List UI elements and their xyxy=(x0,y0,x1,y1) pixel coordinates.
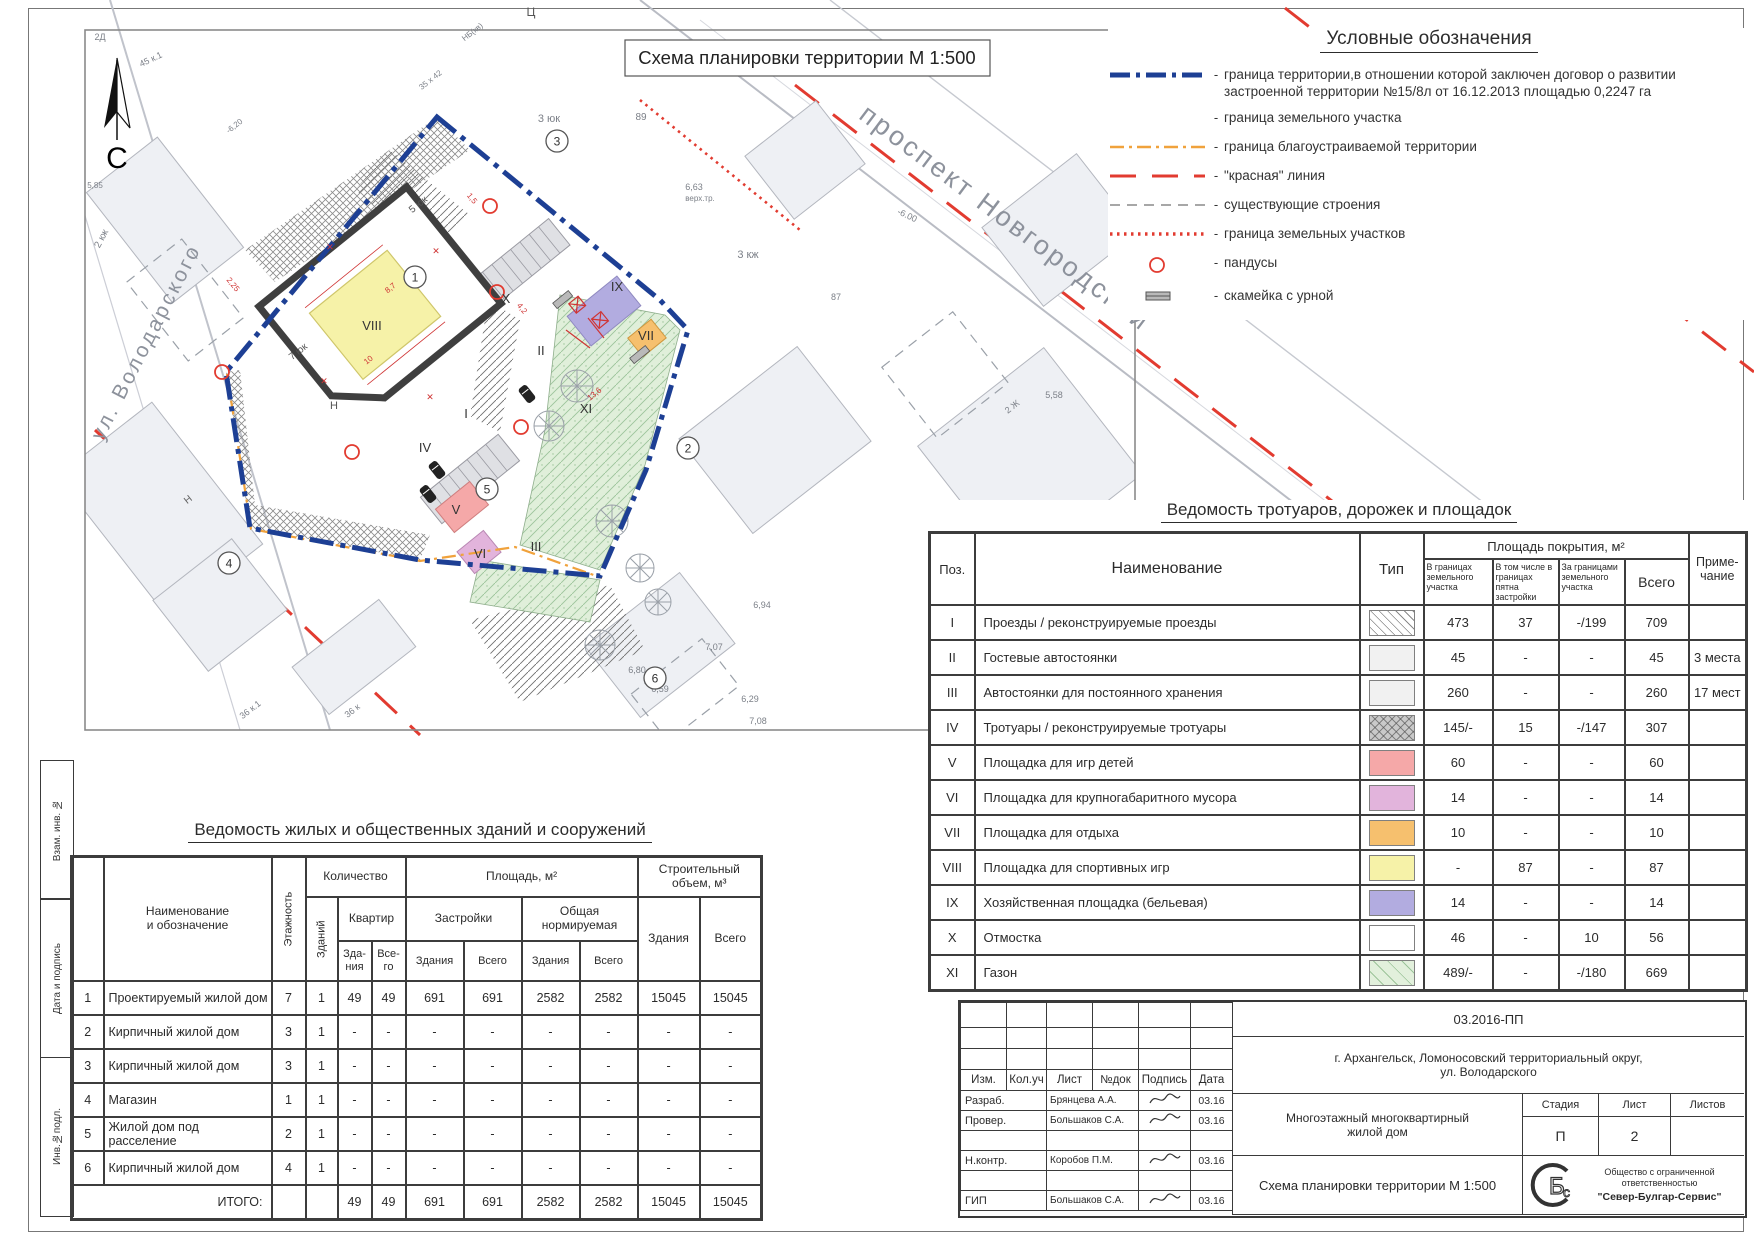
persons-table: Изм.Кол.учЛист№докПодписьДатаРазраб.Брян… xyxy=(960,1002,1233,1211)
grp-vol: Строительный объем, м³ xyxy=(638,857,762,898)
revision-cell xyxy=(1007,1003,1047,1028)
walkways-row: VIIПлощадка для отдыха10--10 xyxy=(930,815,1747,850)
walkways-cell: 87 xyxy=(1493,850,1559,885)
buildings-total-cell xyxy=(306,1185,338,1220)
map-annotation: 5,58 xyxy=(1045,390,1063,400)
person-cell: Брянцева А.А. xyxy=(1047,1091,1139,1111)
buildings-cell: 691 xyxy=(406,981,464,1015)
persons-header-cell: Лист xyxy=(1047,1070,1093,1091)
buildings-total-cell: 691 xyxy=(406,1185,464,1220)
stamp-right: 03.2016-ПП г. Архангельск, Ломоносовский… xyxy=(1232,1002,1744,1215)
revision-cell xyxy=(1093,1049,1139,1070)
legend-item-label: существующие строения xyxy=(1224,197,1380,214)
revision-cell xyxy=(961,1003,1007,1028)
person-cell xyxy=(1191,1131,1233,1151)
person-cell: Н.контр. xyxy=(961,1151,1047,1171)
walkways-cell: IV xyxy=(930,710,975,745)
sheet-label: Лист xyxy=(1598,1094,1670,1117)
buildings-cell: - xyxy=(464,1015,522,1049)
person-row: Провер.Большаков С.А.03.16 xyxy=(961,1111,1233,1131)
col-nz: Здания xyxy=(522,941,580,981)
buildings-cell: - xyxy=(464,1117,522,1151)
col-total: Всего xyxy=(1625,559,1689,605)
buildings-cell: - xyxy=(522,1151,580,1185)
col-num xyxy=(72,857,104,982)
legend-item-label: граница земельных участков xyxy=(1224,226,1405,243)
buildings-cell: Кирпичный жилой дом xyxy=(104,1049,272,1083)
walkways-cell xyxy=(1689,850,1747,885)
walkways-cell: - xyxy=(1493,640,1559,675)
buildings-total-cell: 49 xyxy=(338,1185,372,1220)
gray-dash-symbol xyxy=(1108,197,1208,217)
persons-header-cell: №док xyxy=(1093,1070,1139,1091)
walkways-cell: XI xyxy=(930,955,975,991)
walkways-cell: -/199 xyxy=(1559,605,1625,640)
doc-number: 03.2016-ПП xyxy=(1232,1002,1744,1037)
strip-cell: Инв.№подл. xyxy=(40,1057,74,1217)
person-cell: ГИП xyxy=(961,1191,1047,1211)
map-annotation: НБ(кв) xyxy=(460,21,485,43)
type-swatch xyxy=(1369,890,1415,916)
buildings-cell: - xyxy=(406,1083,464,1117)
walkways-row: IVТротуары / реконструируемые тротуары14… xyxy=(930,710,1747,745)
map-area-label: I xyxy=(464,406,468,421)
project-location: г. Архангельск, Ломоносовский территориа… xyxy=(1232,1037,1744,1094)
buildings-cell: - xyxy=(638,1015,700,1049)
person-cell xyxy=(961,1171,1047,1191)
buildings-cell: 1 xyxy=(306,1083,338,1117)
map-annotation: 3 кж xyxy=(737,249,759,261)
buildings-cell: - xyxy=(522,1015,580,1049)
walkways-cell: -/147 xyxy=(1559,710,1625,745)
map-area-label: VI xyxy=(474,546,486,561)
type-swatch-cell xyxy=(1360,850,1424,885)
buildings-cell: - xyxy=(372,1015,406,1049)
buildings-cell: 4 xyxy=(72,1083,104,1117)
buildings-cell: - xyxy=(338,1015,372,1049)
person-cell: 03.16 xyxy=(1191,1191,1233,1211)
buildings-cell: 15045 xyxy=(638,981,700,1015)
type-swatch xyxy=(1369,785,1415,811)
buildings-cell: 15045 xyxy=(700,981,762,1015)
person-cell: Провер. xyxy=(961,1111,1047,1131)
buildings-table: Наименование и обозначение Этажность Кол… xyxy=(70,855,763,1221)
walkways-cell: Отмостка xyxy=(975,920,1360,955)
person-cell: 03.16 xyxy=(1191,1111,1233,1131)
legend: Условные обозначения -граница территории… xyxy=(1108,28,1750,320)
walkways-cell: Площадка для крупногабаритного мусора xyxy=(975,780,1360,815)
map-area-label: II xyxy=(537,343,544,358)
person-row xyxy=(961,1171,1233,1191)
company-name: "Север-Булгар-Сервис" xyxy=(1581,1191,1739,1203)
buildings-cell: - xyxy=(580,1049,638,1083)
buildings-cell: - xyxy=(638,1151,700,1185)
buildings-title: Ведомость жилых и общественных зданий и … xyxy=(70,820,770,843)
buildings-cell: 2 xyxy=(72,1015,104,1049)
buildings-cell: - xyxy=(406,1151,464,1185)
grp-flats: Квартир xyxy=(338,897,406,941)
walkways-cell: 10 xyxy=(1625,815,1689,850)
buildings-cell: 6 xyxy=(72,1151,104,1185)
revision-cell xyxy=(1093,1003,1139,1028)
buildings-cell: - xyxy=(700,1083,762,1117)
walkways-cell: Хозяйственная площадка (бельевая) xyxy=(975,885,1360,920)
walkways-cell xyxy=(1689,955,1747,991)
buildings-cell: - xyxy=(638,1083,700,1117)
buildings-cell: Жилой дом под расселение xyxy=(104,1117,272,1151)
revision-row xyxy=(961,1049,1233,1070)
map-annotation: верх.тр. xyxy=(685,194,715,203)
walkways-cell: V xyxy=(930,745,975,780)
type-swatch xyxy=(1369,855,1415,881)
walkways-cell: - xyxy=(1559,885,1625,920)
revision-row xyxy=(961,1003,1233,1028)
buildings-cell: Магазин xyxy=(104,1083,272,1117)
blue-dashdot-symbol xyxy=(1108,67,1208,87)
buildings-panel: Ведомость жилых и общественных зданий и … xyxy=(70,820,770,1232)
legend-dash: - xyxy=(1208,67,1224,82)
walkways-cell: - xyxy=(1559,745,1625,780)
map-annotation: Н xyxy=(330,400,338,412)
map-area-label: X xyxy=(502,291,511,306)
revision-cell xyxy=(1139,1049,1191,1070)
walkways-cell: - xyxy=(1493,815,1559,850)
col-pos: Поз. xyxy=(930,533,975,606)
legend-item-label: граница земельного участка xyxy=(1224,110,1402,127)
walkways-cell xyxy=(1689,815,1747,850)
buildings-cell: - xyxy=(406,1117,464,1151)
type-swatch xyxy=(1369,960,1415,986)
type-swatch xyxy=(1369,610,1415,636)
walkways-cell: 17 мест xyxy=(1689,675,1747,710)
map-area-label: IV xyxy=(419,440,432,455)
walkways-cell: 14 xyxy=(1424,780,1493,815)
person-cell xyxy=(961,1131,1047,1151)
legend-item: -граница территории,в отношении которой … xyxy=(1108,67,1750,101)
legend-item: -существующие строения xyxy=(1108,197,1750,217)
col-vol-t: Всего xyxy=(700,897,762,981)
map-annotation: 6,29 xyxy=(741,694,759,704)
revision-cell xyxy=(1093,1028,1139,1049)
persons-header-cell: Изм. xyxy=(961,1070,1007,1091)
buildings-cell: 2582 xyxy=(580,981,638,1015)
person-cell xyxy=(1191,1171,1233,1191)
revision-cell xyxy=(961,1049,1007,1070)
north-label: С xyxy=(106,142,128,175)
buildings-cell: 3 xyxy=(272,1049,306,1083)
strip-cell: Дата и подпись xyxy=(40,898,74,1058)
revision-cell xyxy=(1047,1028,1093,1049)
bench-symbol xyxy=(1108,288,1208,308)
stage-label: Стадия xyxy=(1522,1094,1598,1117)
walkways-cell: Площадка для игр детей xyxy=(975,745,1360,780)
circled-number-label: 2 xyxy=(685,442,692,456)
type-swatch-cell xyxy=(1360,710,1424,745)
buildings-cell: - xyxy=(372,1049,406,1083)
legend-dash: - xyxy=(1208,197,1224,212)
walkways-cell: 45 xyxy=(1625,640,1689,675)
walkways-cell: 709 xyxy=(1625,605,1689,640)
walkways-cell xyxy=(1689,605,1747,640)
map-area-label: VII xyxy=(638,328,654,343)
col-name: Наименование и обозначение xyxy=(104,857,272,982)
col-name: Наименование xyxy=(975,533,1360,606)
buildings-cell: - xyxy=(580,1117,638,1151)
legend-dash: - xyxy=(1208,226,1224,241)
walkways-cell: Тротуары / реконструируемые тротуары xyxy=(975,710,1360,745)
type-swatch xyxy=(1369,680,1415,706)
map-area-label: III xyxy=(531,539,542,554)
red-circle-symbol xyxy=(1108,255,1208,279)
walkways-cell xyxy=(1689,745,1747,780)
buildings-cell: - xyxy=(372,1151,406,1185)
col-a2: В том числе в границах пятна застройки xyxy=(1493,559,1559,605)
legend-item: -граница земельных участков xyxy=(1108,226,1750,246)
walkways-cell xyxy=(1689,885,1747,920)
revision-cell xyxy=(1007,1049,1047,1070)
col-bld: Зданий xyxy=(306,897,338,981)
buildings-cell: 2 xyxy=(272,1117,306,1151)
walkways-title: Ведомость тротуаров, дорожек и площадок xyxy=(928,500,1750,523)
strip-cell: Взам. инв. № xyxy=(40,760,74,900)
person-row xyxy=(961,1131,1233,1151)
person-row: ГИПБольшаков С.А.03.16 xyxy=(961,1191,1233,1211)
map-annotation: 1,5 xyxy=(465,191,479,206)
map-annotation: ✕ xyxy=(432,246,440,256)
walkways-cell: - xyxy=(1493,920,1559,955)
walkways-cell: Проезды / реконструируемые проезды xyxy=(975,605,1360,640)
buildings-cell: - xyxy=(700,1049,762,1083)
map-annotation: 45 к.1 xyxy=(138,50,164,69)
signature-icon xyxy=(1139,1091,1191,1111)
col-note: Приме- чание xyxy=(1689,533,1747,606)
walkways-cell: 260 xyxy=(1424,675,1493,710)
walkways-cell: - xyxy=(1559,850,1625,885)
svg-text:с: с xyxy=(1563,1184,1570,1200)
map-annotation: 2Д xyxy=(94,32,105,42)
buildings-cell: - xyxy=(372,1083,406,1117)
walkways-row: VIПлощадка для крупногабаритного мусора1… xyxy=(930,780,1747,815)
map-annotation: 7,07 xyxy=(705,642,723,652)
buildings-cell: 5 xyxy=(72,1117,104,1151)
buildings-cell: - xyxy=(338,1083,372,1117)
col-a3: За границами земельного участка xyxy=(1559,559,1625,605)
legend-item: -граница благоустраиваемой территории xyxy=(1108,139,1750,159)
map-annotation: 5,85 xyxy=(87,181,103,190)
walkways-row: IIГостевые автостоянки45--453 места xyxy=(930,640,1747,675)
walkways-row: IXХозяйственная площадка (бельевая)14--1… xyxy=(930,885,1747,920)
map-annotation: 36 к xyxy=(343,702,362,720)
legend-item-label: скамейка с урной xyxy=(1224,288,1333,305)
walkways-cell: 14 xyxy=(1625,780,1689,815)
buildings-cell: Кирпичный жилой дом xyxy=(104,1015,272,1049)
buildings-cell: 7 xyxy=(272,981,306,1015)
walkways-cell: - xyxy=(1559,675,1625,710)
buildings-cell: - xyxy=(338,1151,372,1185)
walkways-cell: 60 xyxy=(1625,745,1689,780)
walkways-cell: 145/- xyxy=(1424,710,1493,745)
margin-strip: Взам. инв. № Дата и подпись Инв.№подл. xyxy=(40,760,74,1218)
title-block: Изм.Кол.учЛист№докПодписьДатаРазраб.Брян… xyxy=(958,1000,1747,1218)
revision-row xyxy=(961,1028,1233,1049)
walkways-cell: - xyxy=(1424,850,1493,885)
persons-header-cell: Подпись xyxy=(1139,1070,1191,1091)
map-annotation: 6,63 xyxy=(685,182,703,192)
buildings-cell: 1 xyxy=(272,1083,306,1117)
company-logo: Б с xyxy=(1529,1161,1581,1209)
person-cell: 03.16 xyxy=(1191,1151,1233,1171)
walkways-cell: 46 xyxy=(1424,920,1493,955)
walkways-row: VПлощадка для игр детей60--60 xyxy=(930,745,1747,780)
legend-item-label: пандусы xyxy=(1224,255,1277,272)
persons-header-cell: Кол.уч xyxy=(1007,1070,1047,1091)
map-title: Схема планировки территории М 1:500 xyxy=(638,47,975,68)
buildings-row: 1Проектируемый жилой дом7149496916912582… xyxy=(72,981,762,1015)
buildings-cell: 4 xyxy=(272,1151,306,1185)
buildings-cell: 49 xyxy=(338,981,372,1015)
walkways-cell: - xyxy=(1493,885,1559,920)
type-swatch-cell xyxy=(1360,955,1424,991)
company-type: Общество с ограниченной ответственностью xyxy=(1581,1167,1739,1190)
red-dash-symbol xyxy=(1108,168,1208,188)
buildings-cell: - xyxy=(372,1117,406,1151)
legend-item-label: граница благоустраиваемой территории xyxy=(1224,139,1477,156)
buildings-cell: 3 xyxy=(272,1015,306,1049)
col-area-group: Площадь покрытия, м² xyxy=(1424,533,1689,560)
walkways-cell: Площадка для отдыха xyxy=(975,815,1360,850)
walkways-cell: - xyxy=(1493,745,1559,780)
buildings-total-cell: 2582 xyxy=(580,1185,638,1220)
walkways-row: XОтмостка46-1056 xyxy=(930,920,1747,955)
buildings-cell: - xyxy=(522,1117,580,1151)
type-swatch-cell xyxy=(1360,675,1424,710)
walkways-cell: -/180 xyxy=(1559,955,1625,991)
person-cell: Большаков С.А. xyxy=(1047,1111,1139,1131)
walkways-row: XIГазон489/---/180669 xyxy=(930,955,1747,991)
map-annotation: -6,20 xyxy=(225,117,245,136)
walkways-cell: I xyxy=(930,605,975,640)
buildings-cell: - xyxy=(464,1049,522,1083)
map-area-label: IX xyxy=(611,279,624,294)
walkways-panel: Ведомость тротуаров, дорожек и площадок … xyxy=(928,500,1750,992)
walkways-cell: - xyxy=(1559,815,1625,850)
stamp-sheet-title: Схема планировки территории М 1:500 xyxy=(1232,1156,1522,1215)
walkways-cell: 56 xyxy=(1625,920,1689,955)
col-fv: Всего xyxy=(464,941,522,981)
col-fz: Здания xyxy=(406,941,464,981)
revision-cell xyxy=(1191,1028,1233,1049)
walkways-cell: VI xyxy=(930,780,975,815)
walkways-cell: Автостоянки для постоянного хранения xyxy=(975,675,1360,710)
walkways-cell: 489/- xyxy=(1424,955,1493,991)
buildings-cell: - xyxy=(638,1117,700,1151)
walkways-cell: 307 xyxy=(1625,710,1689,745)
grp-footprint: Застройки xyxy=(406,897,522,941)
walkways-cell: 473 xyxy=(1424,605,1493,640)
buildings-cell: - xyxy=(338,1117,372,1151)
buildings-cell: - xyxy=(580,1015,638,1049)
type-swatch xyxy=(1369,925,1415,951)
walkways-cell: 10 xyxy=(1424,815,1493,850)
person-cell: Коробов П.М. xyxy=(1047,1151,1139,1171)
walkways-cell: 15 xyxy=(1493,710,1559,745)
map-annotation: 36 к.1 xyxy=(238,698,263,721)
circled-number-label: 6 xyxy=(652,672,659,686)
map-annotation: ✕ xyxy=(426,392,434,402)
walkways-cell: VIII xyxy=(930,850,975,885)
walkways-cell: II xyxy=(930,640,975,675)
walkways-cell: - xyxy=(1493,675,1559,710)
walkways-cell: 45 xyxy=(1424,640,1493,675)
buildings-cell: 1 xyxy=(306,1117,338,1151)
walkways-row: IПроезды / реконструируемые проезды47337… xyxy=(930,605,1747,640)
buildings-cell: - xyxy=(522,1083,580,1117)
sheets-value xyxy=(1670,1117,1744,1156)
map-annotation: ✕ xyxy=(326,242,334,252)
person-cell: 03.16 xyxy=(1191,1091,1233,1111)
person-cell: Разраб. xyxy=(961,1091,1047,1111)
circled-number-label: 5 xyxy=(484,483,491,497)
walkways-cell xyxy=(1689,920,1747,955)
legend-item-label: граница территории,в отношении которой з… xyxy=(1224,67,1729,101)
persons-header-row: Изм.Кол.учЛист№докПодписьДата xyxy=(961,1070,1233,1091)
buildings-cell: - xyxy=(700,1117,762,1151)
project-object: Многоэтажный многоквартирный жилой дом xyxy=(1232,1094,1522,1156)
map-annotation: 2,25 xyxy=(225,276,242,294)
legend-item: -граница земельного участка xyxy=(1108,110,1750,130)
map-annotation: -6.00 xyxy=(896,206,919,224)
walkways-cell xyxy=(1689,710,1747,745)
signature-icon xyxy=(1139,1171,1191,1191)
grp-qty: Количество xyxy=(306,857,406,898)
legend-dash: - xyxy=(1208,110,1224,125)
strip-label: Инв.№подл. xyxy=(52,1108,63,1165)
walkways-cell: III xyxy=(930,675,975,710)
person-cell xyxy=(1047,1171,1139,1191)
map-area-label: V xyxy=(452,502,461,517)
buildings-total-cell: 15045 xyxy=(700,1185,762,1220)
buildings-cell: 1 xyxy=(72,981,104,1015)
legend-title: Условные обозначения xyxy=(1108,28,1750,53)
map-annotation: 87 xyxy=(831,292,841,302)
type-swatch xyxy=(1369,820,1415,846)
orange-dashdot-symbol xyxy=(1108,139,1208,159)
type-swatch xyxy=(1369,750,1415,776)
type-swatch xyxy=(1369,645,1415,671)
map-annotation: 4,2 xyxy=(515,301,529,316)
grp-area: Площадь, м² xyxy=(406,857,638,898)
sheets-label: Листов xyxy=(1670,1094,1744,1117)
buildings-row: 3Кирпичный жилой дом31-------- xyxy=(72,1049,762,1083)
person-cell: Большаков С.А. xyxy=(1047,1191,1139,1211)
col-type: Тип xyxy=(1360,533,1424,606)
buildings-total-cell xyxy=(272,1185,306,1220)
legend-dash: - xyxy=(1208,139,1224,154)
revision-cell xyxy=(1191,1049,1233,1070)
col-vol-b: Здания xyxy=(638,897,700,981)
legend-item: -"красная" линия xyxy=(1108,168,1750,188)
buildings-cell: - xyxy=(580,1083,638,1117)
buildings-cell: - xyxy=(464,1083,522,1117)
walkways-row: VIIIПлощадка для спортивных игр-87-87 xyxy=(930,850,1747,885)
buildings-cell: - xyxy=(700,1151,762,1185)
buildings-row: 5Жилой дом под расселение21-------- xyxy=(72,1117,762,1151)
grp-norm: Общая нормируемая xyxy=(522,897,638,941)
person-row: Разраб.Брянцева А.А.03.16 xyxy=(961,1091,1233,1111)
legend-dash: - xyxy=(1208,288,1224,303)
buildings-cell: 1 xyxy=(306,1015,338,1049)
no-symbol xyxy=(1108,110,1208,130)
